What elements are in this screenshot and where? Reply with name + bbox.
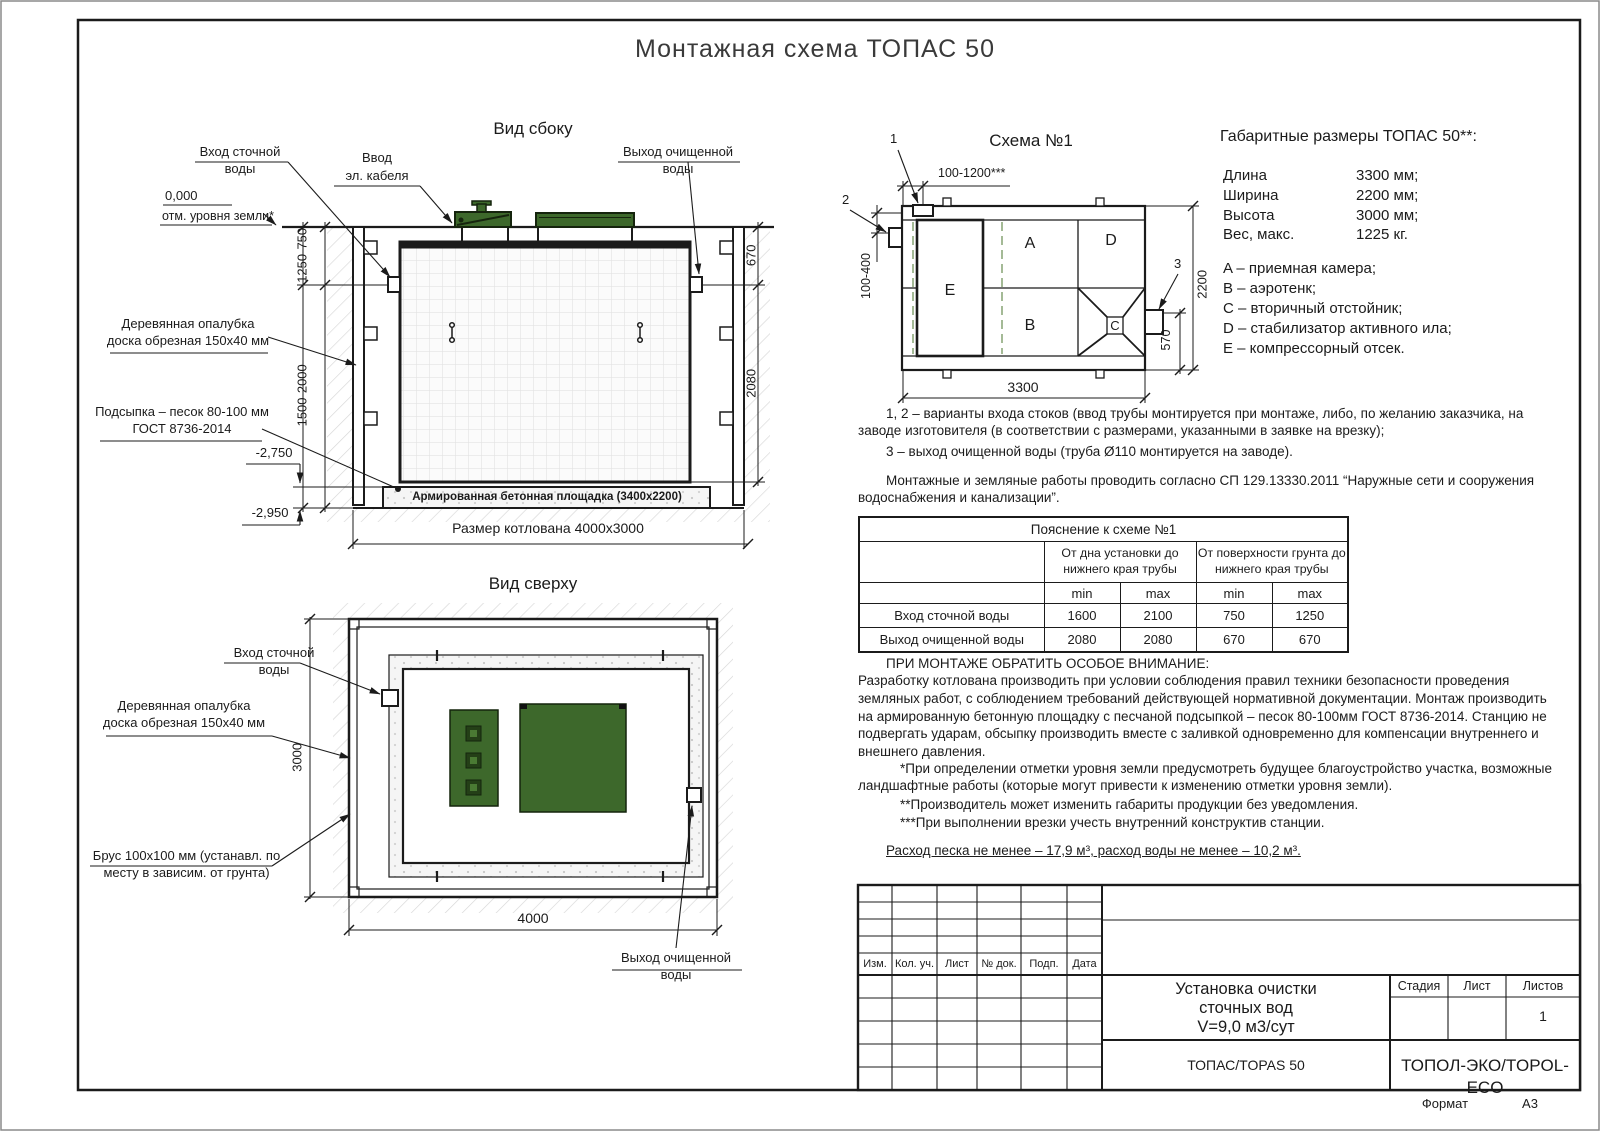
- pit-size-dim: Размер котлована 4000х3000: [380, 520, 716, 538]
- dim-3000: 3000: [290, 732, 307, 782]
- outlet-pipe-stub: [690, 277, 702, 292]
- rev-header-izm: Изм.: [858, 957, 892, 971]
- schema-dim-height: 2200: [1195, 261, 1212, 307]
- compartment-e-label: E: [939, 281, 961, 301]
- format-value: А3: [1505, 1096, 1555, 1113]
- rev-header-doc: № док.: [977, 957, 1021, 971]
- pad-label: Армированная бетонная площадка (3400х220…: [386, 490, 708, 505]
- compartment-a-label: A: [1019, 234, 1041, 254]
- stage-label: Стадия: [1390, 978, 1448, 994]
- inlet-variant-1: [913, 205, 933, 216]
- note-variants-2: 3 – выход очищенной воды (труба Ø110 мон…: [858, 443, 1552, 460]
- inlet-variant-2: [889, 228, 902, 247]
- legend-item: A – приемная камера;: [1223, 259, 1573, 278]
- ground-level-label: отм. уровня земли*: [162, 208, 292, 224]
- explanation-table: Пояснение к схеме №1 От дна установки до…: [858, 516, 1349, 653]
- rev-header-list: Лист: [937, 957, 977, 971]
- green-hatch-small: [450, 710, 498, 806]
- footnote-2: **Производитель может изменить габариты …: [858, 796, 1558, 813]
- elevation-pad: -2,750: [244, 445, 304, 462]
- rev-header-podp: Подп.: [1021, 957, 1067, 971]
- table-empty-cell: [859, 542, 1044, 583]
- footnote-1: *При определении отметки уровня земли пр…: [858, 760, 1558, 795]
- overall-dims-title: Габаритные размеры ТОПАС 50**:: [1220, 127, 1560, 147]
- top-view-outlet-label: Выход очищенной воды: [616, 950, 736, 983]
- rev-header-data: Дата: [1067, 957, 1102, 971]
- legend-item: E – компрессорный отсек.: [1223, 339, 1573, 358]
- top-view-formwork-label: Деревянная опалубка доска обрезная 150х4…: [100, 698, 268, 731]
- schema-dim-length: 3300: [963, 379, 1083, 397]
- drawing-sheet: Монтажная схема ТОПАС 50 Вид сбоку Вход …: [0, 0, 1600, 1131]
- doc-title-line1: Установка очистки: [1102, 979, 1390, 1000]
- dim-1500-2000: 1500-2000: [295, 353, 312, 437]
- legend-item: C – вторичный отстойник;: [1223, 299, 1573, 318]
- table-row: Вход сточной воды 1600 2100 750 1250: [859, 604, 1348, 628]
- table-row: Выход очищенной воды 2080 2080 670 670: [859, 628, 1348, 653]
- consumption-note: Расход песка не менее – 17,9 м³, расход …: [886, 842, 1550, 859]
- overall-dim-label: Высота: [1223, 206, 1343, 225]
- legend-item: B – аэротенк;: [1223, 279, 1573, 298]
- doc-title-line2: сточных вод: [1102, 998, 1390, 1019]
- overall-dim-value: 3000 мм;: [1356, 206, 1486, 225]
- side-view-cable-label-1: Ввод: [334, 150, 420, 167]
- table-empty-cell: [859, 583, 1044, 604]
- sheet-label: Лист: [1448, 978, 1506, 994]
- overall-dim-value: 3300 мм;: [1356, 166, 1486, 185]
- overall-dim-value: 1225 кг.: [1356, 225, 1486, 244]
- attention-body: Разработку котлована производить при усл…: [858, 672, 1558, 761]
- overall-dim-label: Длина: [1223, 166, 1343, 185]
- top-view-timber-label: Брус 100х100 мм (устанавл. по месту в за…: [84, 848, 289, 881]
- green-cover-right: [536, 213, 634, 227]
- rev-header-kol: Кол. уч.: [892, 957, 937, 971]
- formwork-left: [353, 227, 364, 505]
- schema-marker-2: 2: [842, 192, 856, 209]
- tank-body: [400, 242, 690, 482]
- schema-marker-1: 1: [890, 131, 904, 148]
- zero-elevation-mark: 0,000: [165, 188, 235, 205]
- sheets-value: 1: [1506, 1008, 1580, 1026]
- product-name: ТОПАС/TOPAS 50: [1102, 1057, 1390, 1075]
- overall-dim-value: 2200 мм;: [1356, 186, 1486, 205]
- attention-title: ПРИ МОНТАЖЕ ОБРАТИТЬ ОСОБОЕ ВНИМАНИЕ:: [858, 655, 1552, 672]
- sheet-title: Монтажная схема ТОПАС 50: [590, 33, 1040, 65]
- compartment-c-label: C: [1106, 318, 1124, 335]
- table-title: Пояснение к схеме №1: [859, 517, 1348, 542]
- compartment-b-label: B: [1019, 316, 1041, 336]
- side-view-cable-label-2: эл. кабеля: [334, 168, 420, 185]
- doc-title-line3: V=9,0 м3/сут: [1102, 1017, 1390, 1038]
- overall-dim-label: Ширина: [1223, 186, 1343, 205]
- formwork-right: [733, 227, 744, 505]
- schema-dim-top: 100-1200***: [938, 165, 1028, 181]
- dim-4000: 4000: [428, 910, 638, 928]
- schema-dim-outlet: 570: [1158, 322, 1174, 358]
- format-label: Формат: [1400, 1096, 1490, 1113]
- dim-1250-750: 1250-750: [295, 223, 312, 287]
- elevation-bottom: -2,950: [240, 505, 300, 522]
- top-view-inlet-label: Вход сточной воды: [222, 645, 326, 678]
- table-group-2: От поверхности грунта до нижнего края тр…: [1196, 542, 1348, 583]
- note-sp: Монтажные и земляные работы проводить со…: [858, 472, 1552, 507]
- note-variants-1: 1, 2 – варианты входа стоков (ввод трубы…: [858, 405, 1552, 440]
- schema-dim-inlet: 100-400: [858, 246, 874, 306]
- top-view-title: Вид сверху: [468, 573, 598, 595]
- side-view-sand-label: Подсыпка – песок 80-100 мм ГОСТ 8736-201…: [92, 404, 272, 437]
- sheets-label: Листов: [1506, 978, 1580, 994]
- side-view-outlet-label: Выход очищенной воды: [616, 144, 740, 177]
- table-group-1: От дна установки до нижнего края трубы: [1044, 542, 1196, 583]
- dim-670: 670: [744, 235, 761, 275]
- company-name: ТОПОЛ-ЭКО/TOPOL-ECO: [1391, 1055, 1579, 1099]
- compartment-d-label: D: [1100, 231, 1122, 251]
- schema-title: Схема №1: [968, 130, 1094, 152]
- overall-dim-label: Вес, макс.: [1223, 225, 1343, 244]
- inlet-pipe-stub: [388, 277, 400, 292]
- legend-item: D – стабилизатор активного ила;: [1223, 319, 1573, 338]
- side-view-title: Вид сбоку: [468, 118, 598, 140]
- schema-marker-3: 3: [1174, 256, 1188, 273]
- green-hatch-large: [520, 704, 626, 812]
- inlet-square: [382, 690, 398, 706]
- side-view-inlet-label: Вход сточной воды: [190, 144, 290, 177]
- outlet-square: [687, 788, 701, 802]
- dim-2080: 2080: [744, 358, 761, 408]
- side-view-formwork-label: Деревянная опалубка доска обрезная 150х4…: [104, 316, 272, 349]
- footnote-3: ***При выполнении врезки учесть внутренн…: [858, 814, 1558, 831]
